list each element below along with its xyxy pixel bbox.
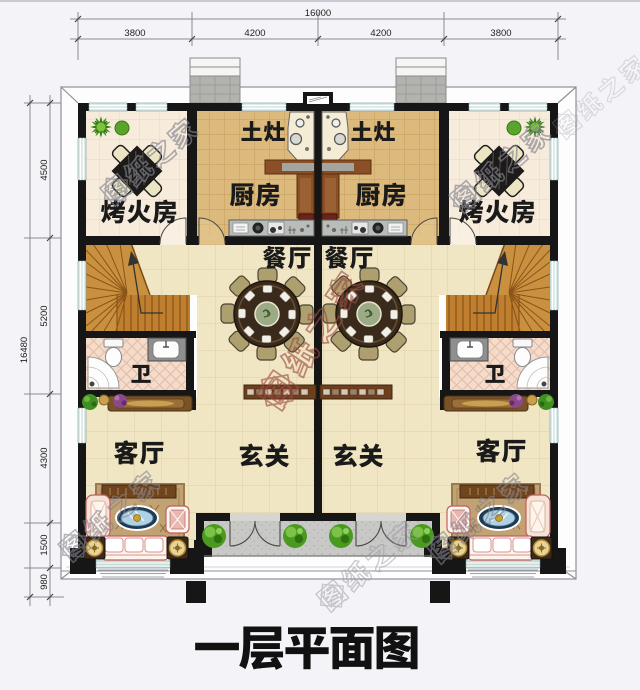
svg-text:3800: 3800 [124,28,145,39]
svg-text:16480: 16480 [19,337,30,363]
svg-text:4200: 4200 [370,28,391,39]
svg-text:4500: 4500 [39,159,50,180]
svg-text:980: 980 [39,574,50,590]
svg-text:4300: 4300 [39,447,50,468]
svg-text:4200: 4200 [244,28,265,39]
svg-text:5200: 5200 [39,305,50,326]
svg-text:3800: 3800 [490,28,511,39]
svg-text:16000: 16000 [305,8,331,19]
svg-text:1500: 1500 [39,534,50,555]
